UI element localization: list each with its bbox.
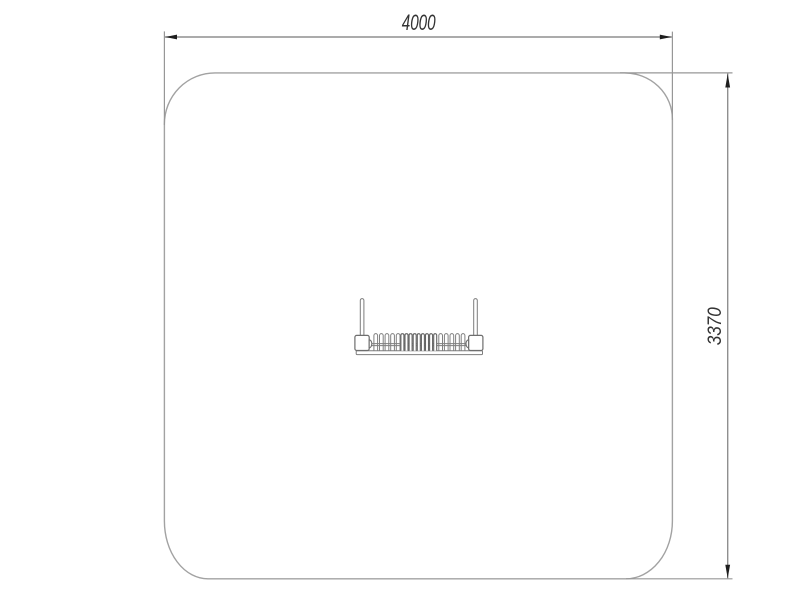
svg-text:3370: 3370 [705, 307, 726, 345]
svg-text:4000: 4000 [402, 10, 437, 35]
